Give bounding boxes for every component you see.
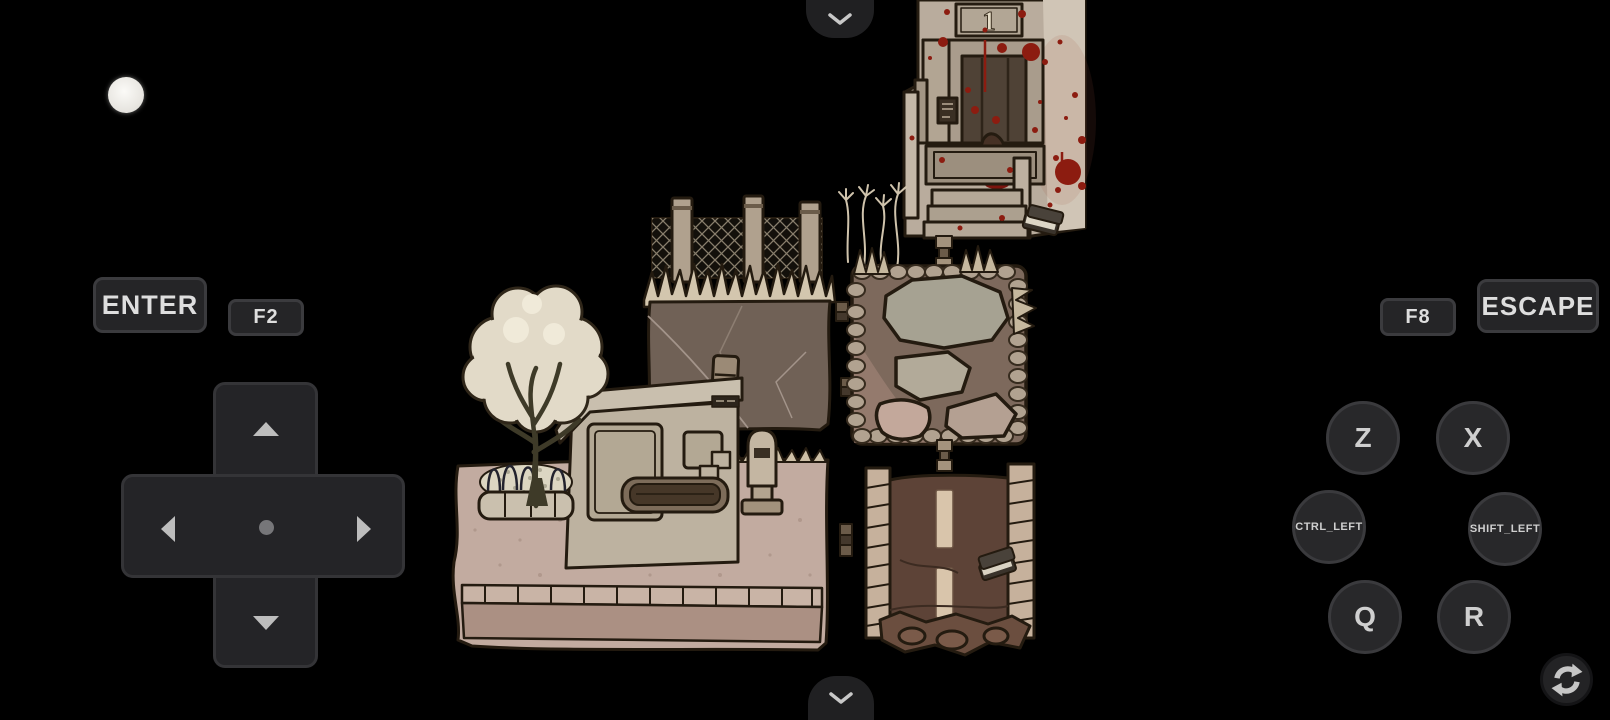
stone-plaza-tile bbox=[836, 236, 1036, 444]
f2-key-button[interactable]: F2 bbox=[228, 299, 304, 336]
r-button[interactable]: R bbox=[1437, 580, 1511, 654]
tree-planter bbox=[479, 464, 573, 519]
escape-key-button[interactable]: ESCAPE bbox=[1477, 279, 1599, 333]
chevron-down-icon bbox=[826, 11, 854, 27]
dpad-center-dot-icon bbox=[259, 520, 274, 535]
q-button[interactable]: Q bbox=[1328, 580, 1402, 654]
arrow-right-icon bbox=[357, 516, 371, 542]
bottom-drawer-handle[interactable] bbox=[808, 676, 874, 720]
chevron-down-icon bbox=[827, 690, 855, 706]
bench bbox=[622, 478, 728, 512]
rotate-icon bbox=[1547, 660, 1587, 700]
hydrant-post bbox=[742, 430, 782, 514]
z-button[interactable]: Z bbox=[1326, 401, 1400, 475]
arrow-up-icon bbox=[253, 422, 279, 436]
road-tile bbox=[840, 440, 1034, 655]
ctrl-left-button[interactable]: CTRL_LEFT bbox=[1292, 490, 1366, 564]
rotate-screen-button[interactable] bbox=[1540, 653, 1593, 706]
dpad-down-button[interactable] bbox=[231, 588, 301, 658]
dpad-right-button[interactable] bbox=[329, 494, 399, 564]
shift-left-button[interactable]: SHIFT_LEFT bbox=[1468, 492, 1542, 566]
emulator-screen: 1 bbox=[0, 0, 1610, 720]
f8-key-button[interactable]: F8 bbox=[1380, 298, 1456, 336]
arrow-left-icon bbox=[161, 516, 175, 542]
x-button[interactable]: X bbox=[1436, 401, 1510, 475]
floating-menu-ball[interactable] bbox=[108, 77, 144, 113]
dpad-left-button[interactable] bbox=[133, 494, 203, 564]
dpad-up-button[interactable] bbox=[231, 394, 301, 464]
building-entrance-tile: 1 bbox=[904, 0, 1096, 238]
enter-key-button[interactable]: ENTER bbox=[93, 277, 207, 333]
dpad[interactable] bbox=[121, 382, 405, 668]
arrow-down-icon bbox=[253, 616, 279, 630]
game-viewport[interactable]: 1 bbox=[440, 0, 1100, 720]
